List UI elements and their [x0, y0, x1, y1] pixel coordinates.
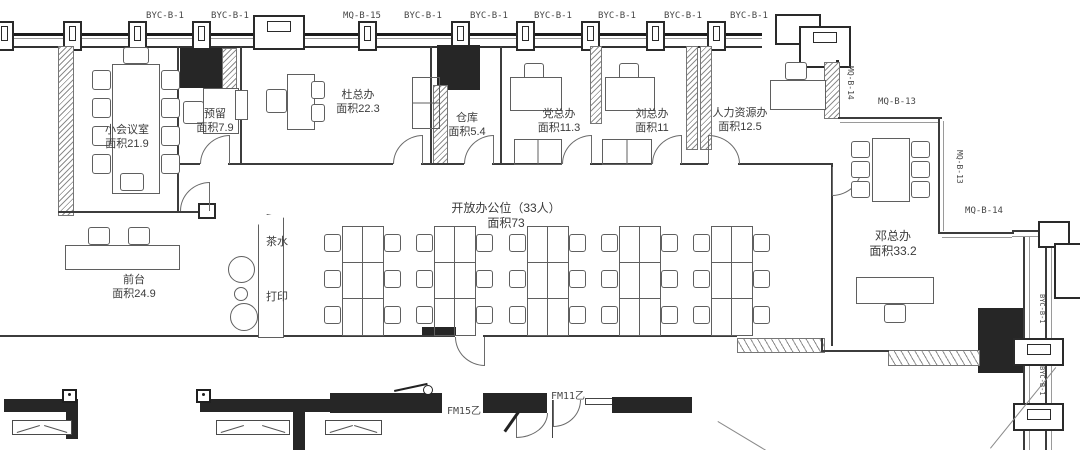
room-label-hr-office: 人力资源办 面积12.5: [713, 107, 768, 135]
chair: [416, 234, 433, 252]
room-label-du-office: 杜总办 面积22.3: [336, 89, 379, 117]
door-arc: [562, 135, 592, 164]
chair: [509, 306, 526, 324]
lift-symbol: [12, 420, 72, 435]
fire-door-knob: [423, 385, 433, 395]
glass-partition: [590, 46, 602, 124]
desk-cluster: [342, 226, 384, 336]
lift-arrow: [17, 425, 40, 433]
facade-block-inner: [813, 32, 837, 43]
chair: [311, 104, 325, 122]
chair: [476, 306, 493, 324]
mullion-inner: [364, 26, 371, 41]
door-arc: [200, 135, 230, 164]
chair: [693, 270, 710, 288]
door-arc: [652, 135, 682, 164]
room-area: 面积33.2: [869, 244, 916, 259]
glass-strip: [888, 350, 980, 366]
conference-table: [872, 138, 910, 202]
wall: [421, 163, 464, 165]
room-name: 仓库: [448, 112, 485, 126]
cabinet: [235, 90, 248, 120]
facade-label: BYC-B-1: [664, 11, 702, 21]
chair: [884, 304, 906, 323]
mullion-inner: [1027, 409, 1051, 420]
lift-arrow: [221, 425, 244, 433]
room-area: 面积11.3: [538, 122, 581, 136]
facade-label: BYC-B-1: [598, 11, 636, 21]
facade-label-vertical: BYC-B-1: [1038, 366, 1046, 396]
room-name: 人力资源办: [713, 107, 768, 121]
glass-partition: [222, 48, 237, 90]
facade-label: BYC-B-1: [404, 11, 442, 21]
room-name: 预留: [196, 108, 233, 122]
core-marker-dot: [202, 393, 205, 396]
leader-line: [717, 421, 766, 450]
chair: [416, 306, 433, 324]
chair: [92, 154, 111, 174]
entrance-door-arc: [455, 337, 485, 366]
facade-label: BYC-B-1: [470, 11, 508, 21]
chair: [384, 270, 401, 288]
chair: [324, 270, 341, 288]
chair: [92, 70, 111, 90]
chair: [416, 270, 433, 288]
room-label-open-office: 开放办公位（33人） 面积73: [451, 201, 560, 231]
sofa: [514, 139, 562, 165]
facade-block: [253, 15, 305, 50]
mullion: [358, 21, 377, 51]
desk-cluster: [434, 226, 476, 336]
lift-arrow: [262, 425, 285, 433]
room-label-reception: 前台 面积24.9: [112, 274, 155, 302]
door-arc: [393, 135, 423, 164]
desk-cluster: [527, 226, 569, 336]
core-wall: [330, 393, 442, 413]
facade-label: BYC-B-1: [211, 11, 249, 21]
wall-line: [943, 121, 944, 231]
fire-door-label: FM11乙: [551, 387, 585, 402]
room-area: 面积73: [451, 216, 560, 231]
chair: [851, 141, 870, 158]
reception-desk: [65, 245, 180, 270]
chair: [601, 306, 618, 324]
wall: [938, 117, 940, 234]
wall: [0, 335, 455, 337]
chair: [123, 47, 149, 64]
chair: [661, 234, 678, 252]
mullion-inner: [713, 26, 720, 41]
wall: [823, 350, 889, 352]
chair: [661, 306, 678, 324]
lift-symbol: [216, 420, 290, 435]
mullion-inner: [198, 26, 205, 41]
room-area: 面积22.3: [336, 103, 379, 117]
door-arc: [180, 182, 210, 211]
tea-point-label: 茶水: [266, 236, 288, 250]
chair: [509, 270, 526, 288]
facade-label: MQ-B-14: [965, 206, 1003, 216]
fire-door-label: FM15乙: [447, 402, 481, 417]
mullion: [192, 21, 211, 51]
chair: [753, 270, 770, 288]
wall-line: [840, 122, 938, 123]
wall: [680, 163, 708, 165]
sink-circle: [230, 303, 258, 331]
wall-line: [942, 237, 1012, 238]
chair: [384, 234, 401, 252]
chair: [324, 234, 341, 252]
wall: [483, 335, 737, 337]
chair: [120, 173, 144, 191]
room-label-meeting: 小会议室 面积21.9: [105, 124, 149, 152]
core-wall: [483, 393, 547, 413]
mullion-inner: [457, 26, 464, 41]
chair: [569, 234, 586, 252]
chair: [693, 306, 710, 324]
chair: [661, 270, 678, 288]
desk: [510, 77, 562, 111]
room-area: 面积11: [635, 122, 668, 136]
mullion-inner: [652, 26, 659, 41]
room-name: 杜总办: [336, 89, 379, 103]
wall: [838, 117, 942, 119]
chair: [161, 154, 180, 174]
mullion-inner: [522, 26, 529, 41]
lift-arrow: [354, 425, 377, 433]
room-label-storage: 仓库 面积5.4: [448, 112, 485, 140]
wall: [738, 163, 833, 165]
core-marker-dot: [68, 393, 71, 396]
core-wall: [612, 397, 692, 413]
wall: [940, 232, 1014, 234]
chair: [161, 70, 180, 90]
mullion: [1013, 403, 1064, 431]
chair: [509, 234, 526, 252]
chair: [266, 89, 287, 113]
room-name: 党总办: [538, 108, 581, 122]
lift-symbol: [325, 420, 382, 435]
chair: [693, 234, 710, 252]
floor-plan: BYC-B-1 BYC-B-1 MQ-B-15 BYC-B-1 BYC-B-1 …: [0, 0, 1080, 450]
mullion: [1013, 338, 1064, 366]
room-label-dang-office: 党总办 面积11.3: [538, 108, 581, 136]
sink-circle: [228, 256, 255, 283]
chair: [851, 161, 870, 178]
chair: [92, 98, 111, 118]
facade-block-inner: [267, 21, 291, 32]
chair: [753, 306, 770, 324]
wall: [58, 211, 206, 213]
lift-arrow: [44, 425, 67, 433]
facade-label-vertical: BYC-B-1: [1038, 294, 1046, 324]
room-label-deng-office: 邓总办 面积33.2: [869, 229, 916, 259]
chair: [476, 270, 493, 288]
column: [180, 48, 222, 88]
column: [437, 45, 480, 90]
facade-notch: [1054, 243, 1080, 299]
room-area: 面积21.9: [105, 138, 149, 152]
chair: [161, 98, 180, 118]
facade-label-vertical: MQ-B-13: [955, 150, 964, 184]
wall: [228, 163, 393, 165]
facade-label-vertical: MQ-B-14: [846, 66, 855, 100]
facade-label: BYC-B-1: [534, 11, 572, 21]
chair: [161, 126, 180, 146]
mullion: [516, 21, 535, 51]
mullion: [646, 21, 665, 51]
wall: [177, 163, 200, 165]
desk: [770, 80, 826, 110]
glass-partition: [58, 46, 74, 216]
mullion-inner: [1027, 344, 1051, 355]
print-label: 打印: [266, 291, 288, 305]
core-marker: [196, 389, 211, 403]
room-name: 小会议室: [105, 124, 149, 138]
sofa: [602, 139, 652, 165]
core-marker: [62, 389, 77, 403]
core-wall-thin: [585, 398, 615, 405]
chair: [569, 306, 586, 324]
facade-label: MQ-B-13: [878, 97, 916, 107]
wall: [500, 46, 502, 165]
room-name: 开放办公位（33人）: [451, 201, 560, 216]
chair: [911, 161, 930, 178]
room-name: 刘总办: [635, 108, 668, 122]
chair: [601, 270, 618, 288]
chair: [128, 227, 150, 245]
chair: [601, 234, 618, 252]
glass-partition: [686, 46, 698, 150]
room-area: 面积12.5: [713, 121, 768, 135]
room-label-reserved: 预留 面积7.9: [196, 108, 233, 136]
sink-circle: [234, 287, 248, 301]
desk-cluster: [711, 226, 753, 336]
desk: [856, 277, 934, 304]
mullion-inner: [134, 26, 141, 41]
mullion-inner: [587, 26, 594, 41]
tea-print-cabinet: [258, 214, 284, 338]
facade-label: MQ-B-15: [343, 11, 381, 21]
room-area: 面积5.4: [448, 126, 485, 140]
room-area: 面积7.9: [196, 122, 233, 136]
chair: [569, 270, 586, 288]
mullion-inner: [1, 26, 8, 41]
glass-partition: [824, 62, 840, 119]
chair: [753, 234, 770, 252]
chair: [88, 227, 110, 245]
chair: [324, 306, 341, 324]
room-area: 面积24.9: [112, 288, 155, 302]
chair: [851, 181, 870, 198]
door-arc: [516, 413, 548, 438]
facade-label: BYC-B-1: [730, 11, 768, 21]
door-arc: [553, 400, 581, 427]
desk: [605, 77, 655, 111]
mullion: [0, 21, 14, 51]
room-name: 前台: [112, 274, 155, 288]
chair: [785, 62, 807, 80]
chair: [311, 81, 325, 99]
mullion-inner: [69, 26, 76, 41]
chair: [384, 306, 401, 324]
chair: [476, 234, 493, 252]
lift-arrow: [330, 425, 353, 433]
door-arc: [708, 135, 740, 164]
glass-strip: [737, 338, 825, 353]
core-wall: [293, 411, 305, 450]
chair: [911, 181, 930, 198]
sofa: [412, 77, 440, 129]
room-label-liu-office: 刘总办 面积11: [635, 108, 668, 136]
facade-label: BYC-B-1: [146, 11, 184, 21]
chair: [911, 141, 930, 158]
room-name: 邓总办: [869, 229, 916, 244]
desk-cluster: [619, 226, 661, 336]
